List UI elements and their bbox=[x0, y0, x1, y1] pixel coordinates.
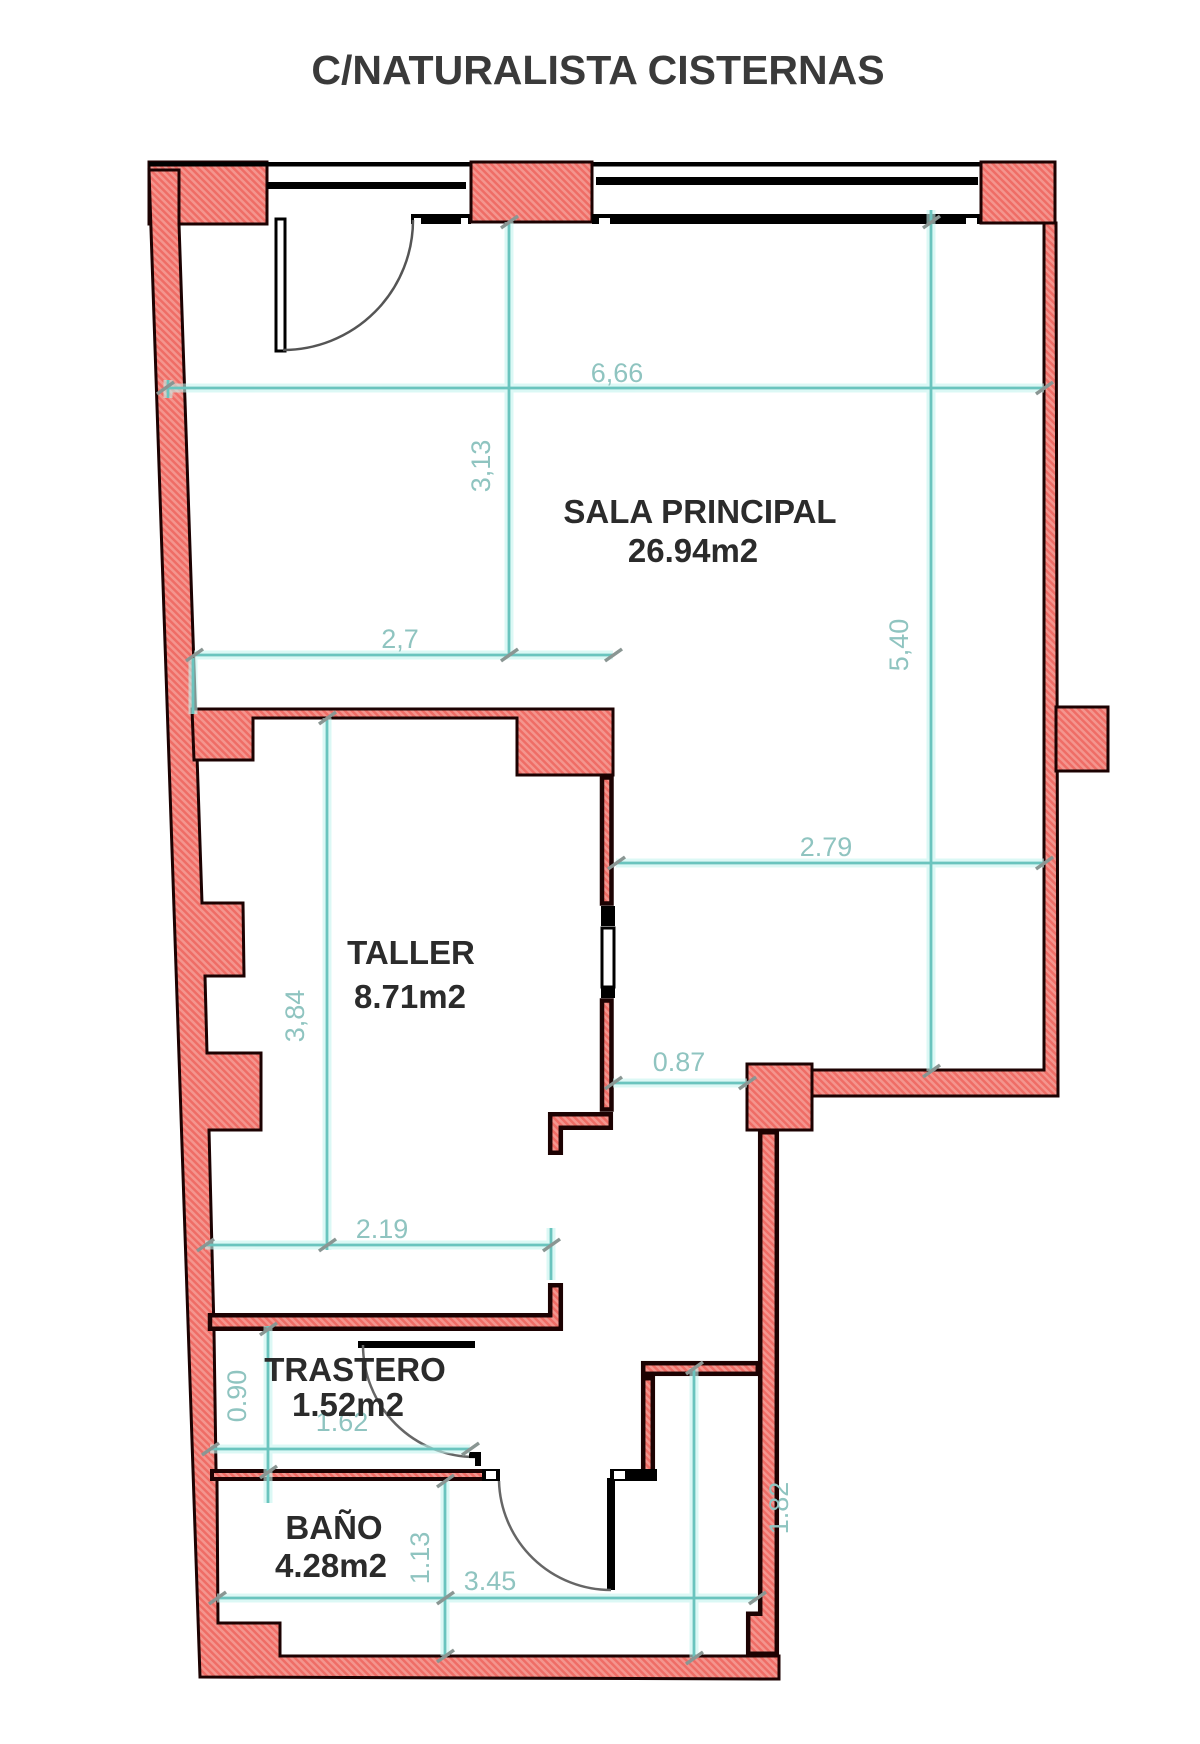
svg-text:0.90: 0.90 bbox=[222, 1370, 252, 1423]
svg-text:C/NATURALISTA CISTERNAS: C/NATURALISTA CISTERNAS bbox=[311, 47, 884, 93]
svg-text:1.13: 1.13 bbox=[405, 1532, 435, 1585]
svg-text:4.28m2: 4.28m2 bbox=[275, 1547, 387, 1584]
svg-text:26.94m2: 26.94m2 bbox=[628, 532, 758, 569]
svg-text:2,7: 2,7 bbox=[381, 624, 419, 654]
svg-text:2.19: 2.19 bbox=[356, 1214, 409, 1244]
svg-text:5,40: 5,40 bbox=[884, 619, 914, 672]
svg-text:TALLER: TALLER bbox=[347, 934, 475, 971]
svg-text:3,84: 3,84 bbox=[280, 990, 310, 1043]
svg-text:1.52m2: 1.52m2 bbox=[292, 1386, 404, 1423]
svg-text:TRASTERO: TRASTERO bbox=[264, 1351, 446, 1388]
svg-text:BAÑO: BAÑO bbox=[285, 1509, 382, 1546]
svg-text:2.79: 2.79 bbox=[800, 832, 853, 862]
svg-text:SALA PRINCIPAL: SALA PRINCIPAL bbox=[563, 493, 836, 530]
svg-text:3,13: 3,13 bbox=[466, 440, 496, 493]
svg-text:3.45: 3.45 bbox=[464, 1566, 517, 1596]
svg-text:1.82: 1.82 bbox=[764, 1482, 794, 1535]
svg-text:8.71m2: 8.71m2 bbox=[354, 978, 466, 1015]
svg-text:0.87: 0.87 bbox=[653, 1047, 706, 1077]
svg-text:6,66: 6,66 bbox=[591, 358, 644, 388]
